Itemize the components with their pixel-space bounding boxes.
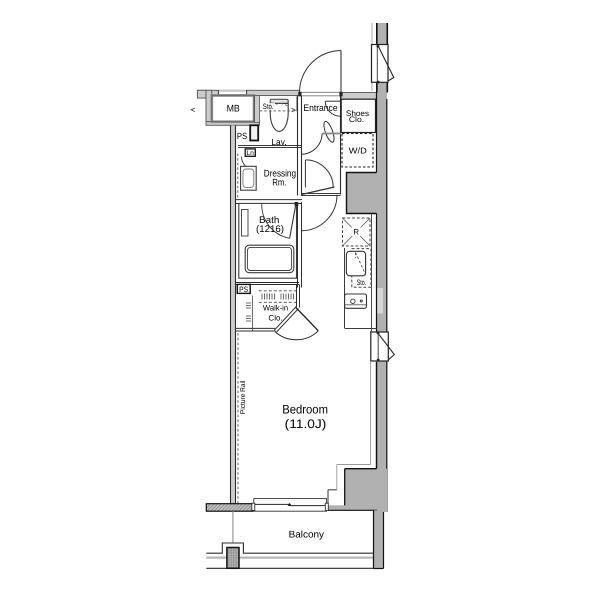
svg-text:Entrance: Entrance xyxy=(303,103,337,114)
svg-text:Ln: Ln xyxy=(246,150,254,157)
svg-text:MB: MB xyxy=(227,103,240,114)
svg-text:Lav.: Lav. xyxy=(271,137,286,147)
svg-text:Sto.: Sto. xyxy=(357,278,367,287)
svg-text:Sto.: Sto. xyxy=(263,102,274,111)
svg-text:PS: PS xyxy=(239,285,248,294)
svg-text:R: R xyxy=(353,228,359,237)
svg-text:Clo.: Clo. xyxy=(349,115,364,124)
svg-text:Clo.: Clo. xyxy=(268,314,282,323)
svg-text:(11.0J): (11.0J) xyxy=(285,417,327,431)
svg-text:PS: PS xyxy=(237,131,247,141)
svg-text:W/D: W/D xyxy=(349,146,367,156)
svg-text:Picture Rail: Picture Rail xyxy=(239,380,247,414)
svg-text:(1216): (1216) xyxy=(256,224,284,235)
svg-text:Walk-in: Walk-in xyxy=(263,304,288,313)
svg-text:Bedroom: Bedroom xyxy=(282,402,328,416)
svg-text:Rm.: Rm. xyxy=(272,177,286,188)
svg-text:Balcony: Balcony xyxy=(289,530,325,541)
